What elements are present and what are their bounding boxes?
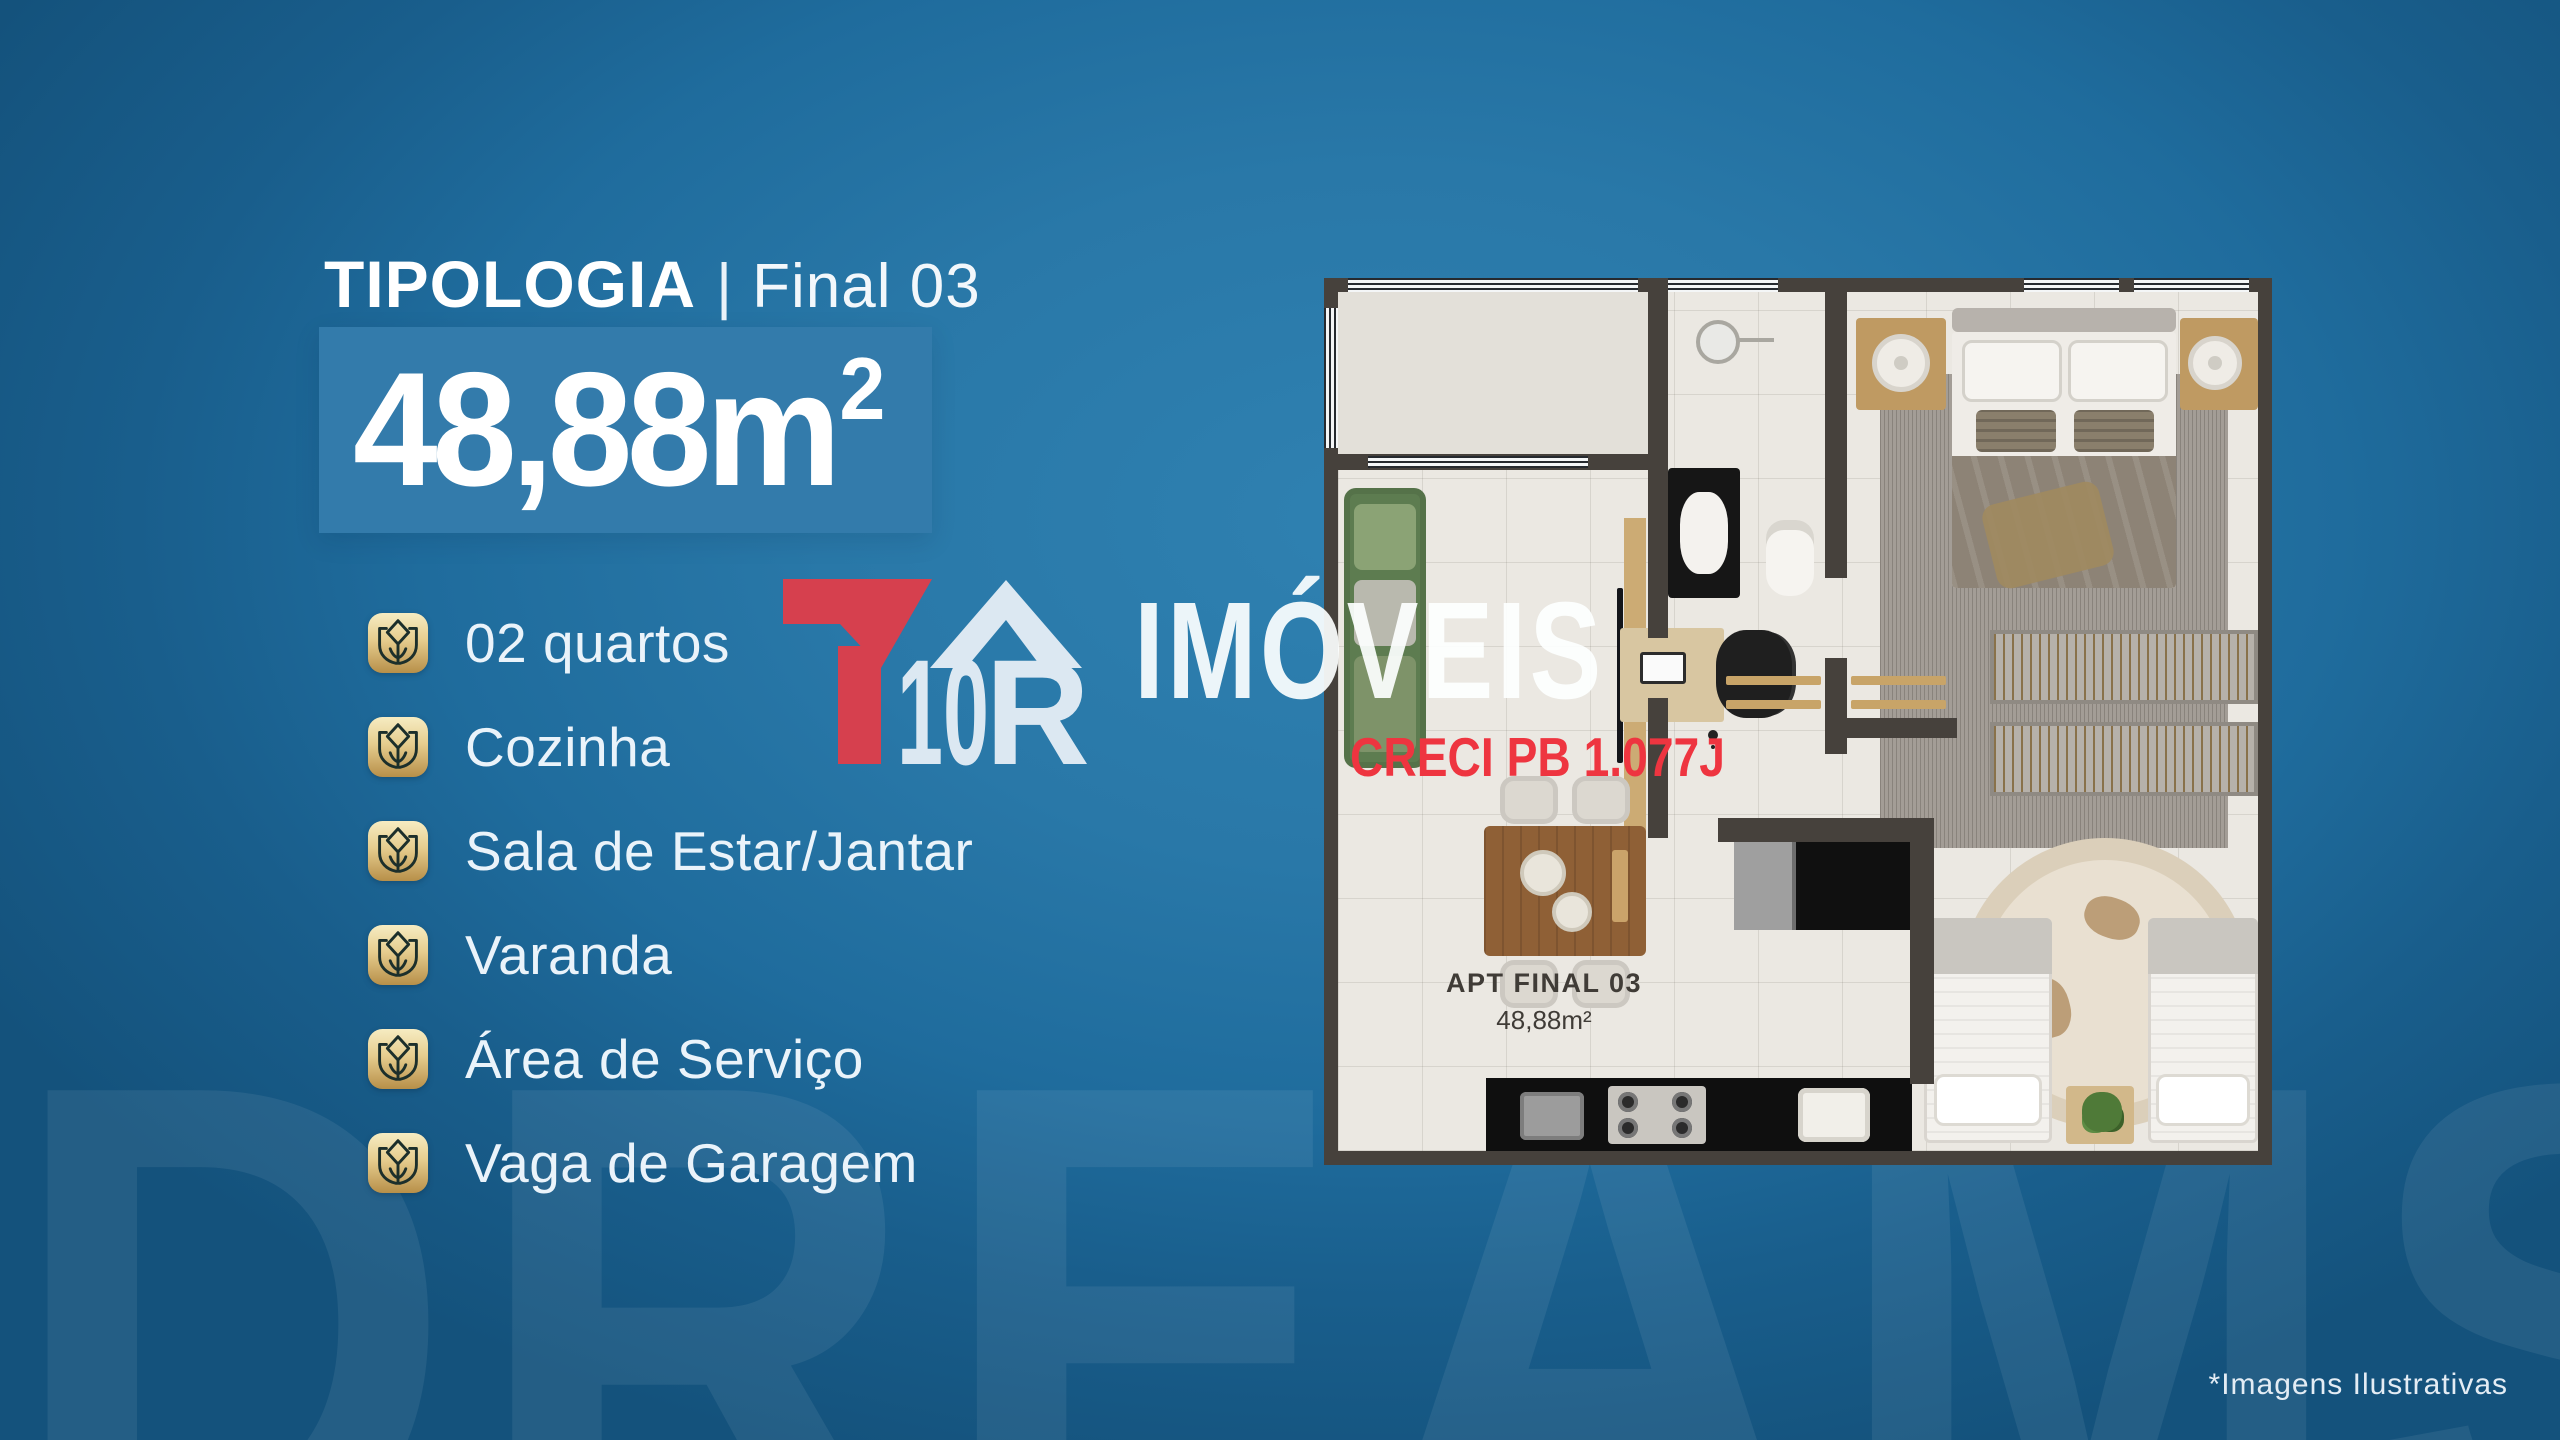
logo-letter: R [985, 628, 1090, 772]
bed-headboard [1952, 308, 2176, 332]
table-lamp [2188, 336, 2242, 390]
title-final: Final 03 [752, 251, 981, 322]
pillow [2068, 340, 2168, 402]
feature-label: Varanda [465, 924, 672, 986]
shower-head [1696, 320, 1740, 364]
wardrobe [1990, 630, 2258, 704]
table-lamp [1872, 334, 1930, 392]
feature-label: Sala de Estar/Jantar [465, 820, 973, 882]
cushion [1976, 410, 2056, 452]
tulip-crest-icon [367, 1028, 429, 1090]
title-tipologia: TIPOLOGIA [324, 246, 696, 322]
apartment-label: APT FINAL 03 48,88m² [1424, 968, 1664, 1036]
tulip-crest-icon [367, 612, 429, 674]
feature-label: Vaga de Garagem [465, 1132, 918, 1194]
brand-watermark: 10 R IMÓVEIS CRECI PB 1.077J [770, 548, 1730, 793]
feature-label: Cozinha [465, 716, 670, 778]
list-item: Área de Serviço [367, 1028, 973, 1090]
wall [1910, 834, 1934, 1084]
marketing-slide: DREAMS TIPOLOGIA | Final 03 48,88m2 02 q… [0, 0, 2560, 1440]
creci-number: CRECI PB 1.077J [1350, 730, 1725, 785]
pillow [1962, 340, 2062, 402]
tulip-crest-icon [367, 716, 429, 778]
page-title: TIPOLOGIA | Final 03 [324, 246, 981, 322]
list-item: Vaga de Garagem [367, 1132, 973, 1194]
plate [1552, 892, 1592, 932]
t10r-logo-icon: 10 R [780, 572, 1116, 772]
tulip-crest-icon [367, 820, 429, 882]
tulip-crest-icon [367, 924, 429, 986]
cushion [2074, 410, 2154, 452]
list-item: Sala de Estar/Jantar [367, 820, 973, 882]
toilet [1766, 520, 1814, 596]
area-value: 48,88m2 [353, 327, 885, 533]
balcony-door [1368, 456, 1588, 468]
window [2024, 278, 2119, 292]
kitchen-wall [1718, 818, 1934, 842]
wall [2258, 278, 2272, 1165]
tulip-crest-icon [367, 1132, 429, 1194]
plant [2082, 1092, 2122, 1132]
disclaimer-text: *Imagens Ilustrativas [2209, 1368, 2508, 1402]
feature-label: Área de Serviço [465, 1028, 864, 1090]
shower-arm [1738, 338, 1774, 342]
window [2134, 278, 2249, 292]
feature-label: 02 quartos [465, 612, 730, 674]
laundry-sink [1798, 1088, 1870, 1142]
wall [1324, 1151, 2272, 1165]
window [1348, 278, 1638, 292]
pillow [1934, 1074, 2042, 1126]
kitchen-sink [1520, 1092, 1584, 1140]
balcony-floor [1338, 292, 1648, 454]
title-separator: | [696, 251, 752, 322]
window [1668, 278, 1778, 292]
apartment-label-line1: APT FINAL 03 [1424, 968, 1664, 999]
wall [1825, 292, 1847, 578]
area-highlight-box: 48,88m2 [319, 327, 932, 533]
plate [1520, 850, 1566, 896]
apartment-label-line2: 48,88m² [1424, 1005, 1664, 1036]
pillow [2156, 1074, 2250, 1126]
dishwasher [1734, 842, 1796, 930]
serving-board [1612, 850, 1628, 922]
wall [1825, 658, 1847, 754]
wall [1847, 718, 1957, 738]
list-item: Varanda [367, 924, 973, 986]
window [1324, 308, 1338, 448]
brand-name: IMÓVEIS [1134, 582, 1604, 720]
wardrobe [1990, 722, 2258, 796]
